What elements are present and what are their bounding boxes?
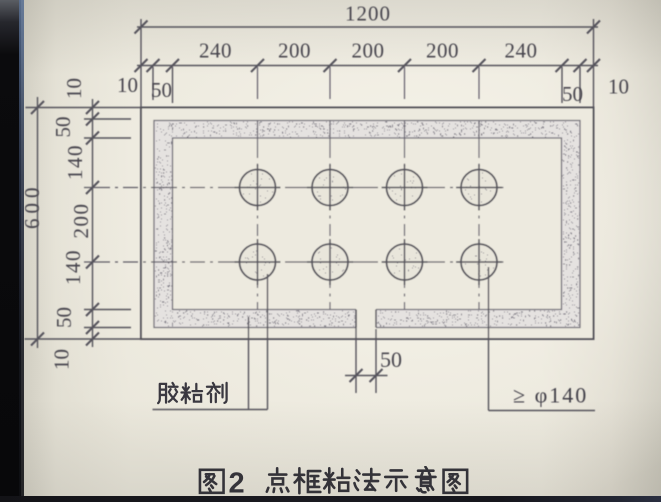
svg-text:140: 140 [63, 144, 87, 180]
svg-text:1200: 1200 [345, 2, 391, 26]
svg-text:200: 200 [278, 39, 311, 63]
svg-text:200: 200 [352, 39, 385, 63]
svg-text:10: 10 [50, 349, 74, 370]
svg-text:10: 10 [608, 75, 629, 99]
svg-text:50: 50 [151, 78, 172, 102]
svg-text:200: 200 [69, 203, 93, 239]
svg-text:600: 600 [20, 183, 44, 230]
svg-text:10: 10 [117, 73, 138, 97]
svg-text:240: 240 [199, 39, 232, 63]
svg-text:240: 240 [505, 39, 538, 63]
svg-text:≥ φ140: ≥ φ140 [513, 383, 588, 408]
svg-text:200: 200 [426, 39, 459, 63]
svg-text:140: 140 [61, 249, 85, 285]
svg-text:2: 2 [229, 468, 245, 500]
svg-text:50: 50 [51, 117, 75, 138]
svg-text:50: 50 [380, 347, 402, 372]
svg-text:50: 50 [562, 82, 583, 106]
svg-text:10: 10 [62, 78, 86, 99]
svg-text:50: 50 [52, 307, 76, 328]
